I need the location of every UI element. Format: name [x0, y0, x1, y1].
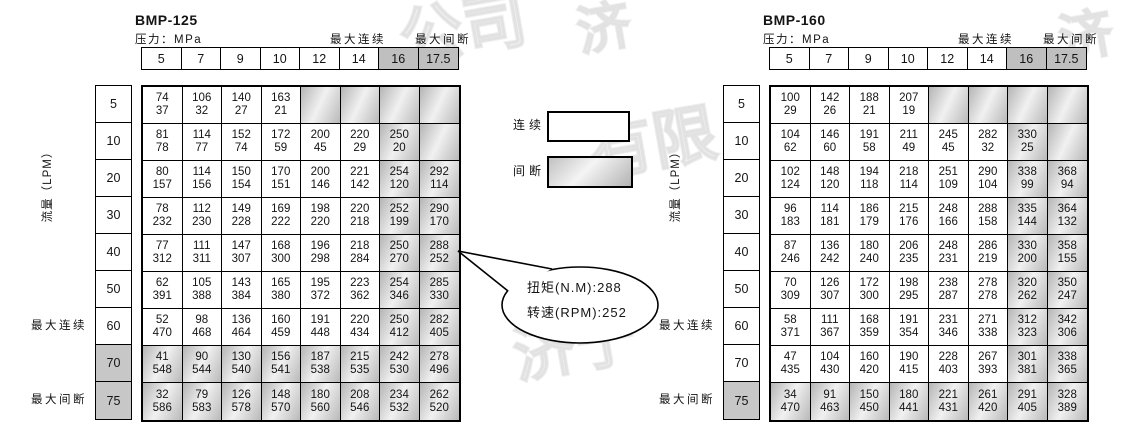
- speed-value: 200: [1018, 253, 1037, 266]
- speed-value: 27: [235, 105, 248, 118]
- data-cell: 350247: [1048, 272, 1088, 309]
- torque-value: 172: [860, 277, 879, 290]
- speed-value: 32: [981, 142, 994, 155]
- torque-value: 198: [899, 277, 918, 290]
- torque-value: 328: [1058, 389, 1077, 402]
- torque-value: 292: [430, 166, 449, 179]
- speed-value: 520: [430, 402, 449, 415]
- torque-value: 147: [232, 240, 251, 253]
- data-cell: 252199: [380, 198, 420, 235]
- data-cell: 218284: [341, 235, 381, 272]
- flow-label-cell: 20: [724, 160, 759, 197]
- torque-value: 160: [860, 351, 879, 364]
- speed-value: 19: [902, 105, 915, 118]
- torque-value: 198: [311, 203, 330, 216]
- speed-value: 430: [820, 364, 839, 377]
- flow-label-cell: 60: [724, 308, 759, 345]
- data-cell: 25020: [380, 124, 420, 161]
- data-cell: 234532: [380, 383, 420, 420]
- speed-value: 155: [1058, 253, 1077, 266]
- speed-value: 420: [978, 402, 997, 415]
- data-cell: 196298: [301, 235, 341, 272]
- torque-value: 80: [156, 166, 169, 179]
- data-cell: 33899: [1008, 161, 1048, 198]
- speed-value: 435: [781, 364, 800, 377]
- speed-value: 548: [153, 364, 172, 377]
- torque-value: 140: [232, 92, 251, 105]
- torque-value: 142: [820, 92, 839, 105]
- flow-label-cell: 40: [724, 234, 759, 271]
- speed-value: 586: [153, 402, 172, 415]
- torque-value: 250: [390, 240, 409, 253]
- flow-label-column: 51020304050607075: [723, 85, 760, 420]
- speed-value: 384: [232, 290, 251, 303]
- data-cell: 150154: [222, 161, 262, 198]
- torque-value: 215: [350, 351, 369, 364]
- callout-torque-text: 扭矩(N.M):288: [527, 277, 622, 296]
- torque-value: 191: [899, 314, 918, 327]
- continuous-legend-swatch: [547, 111, 630, 142]
- speed-value: 311: [193, 253, 211, 266]
- data-cell: 19158: [850, 124, 890, 161]
- speed-value: 323: [1018, 327, 1037, 340]
- speed-value: 470: [781, 402, 800, 415]
- torque-value: 220: [350, 129, 369, 142]
- speed-value: 74: [235, 142, 248, 155]
- flow-axis-label: 流量（LPM）: [39, 134, 55, 234]
- torque-value: 150: [860, 389, 879, 402]
- pressure-unit-label: 压力：MPa: [763, 31, 830, 47]
- data-cell: 248166: [929, 198, 969, 235]
- torque-value: 136: [820, 240, 839, 253]
- data-cell: 148120: [811, 161, 851, 198]
- torque-value: 143: [232, 277, 251, 290]
- speed-value: 232: [153, 216, 172, 229]
- torque-value: 180: [311, 389, 330, 402]
- data-cell: 330200: [1008, 235, 1048, 272]
- data-cell: 114156: [183, 161, 223, 198]
- speed-value: 114: [900, 179, 918, 192]
- data-cell: 278496: [420, 346, 460, 383]
- speed-value: 530: [390, 364, 409, 377]
- data-cell: 250412: [380, 309, 420, 346]
- data-cell: 41548: [143, 346, 183, 383]
- speed-value: 532: [390, 402, 409, 415]
- data-cell: 14226: [811, 87, 851, 124]
- speed-value: 403: [939, 364, 958, 377]
- speed-value: 32: [195, 105, 208, 118]
- flow-label-cell: 70: [96, 345, 131, 382]
- speed-value: 298: [311, 253, 330, 266]
- data-cell: 186179: [850, 198, 890, 235]
- speed-value: 29: [353, 142, 366, 155]
- speed-value: 415: [899, 364, 918, 377]
- torque-value: 282: [978, 129, 997, 142]
- speed-value: 114: [430, 179, 448, 192]
- torque-value: 242: [390, 351, 409, 364]
- data-cell: [301, 87, 341, 124]
- data-cell: 221431: [929, 383, 969, 420]
- torque-value: 338: [1018, 166, 1037, 179]
- data-cell: 187538: [301, 346, 341, 383]
- speed-value: 278: [978, 290, 997, 303]
- torque-value: 102: [781, 166, 800, 179]
- speed-value: 287: [939, 290, 958, 303]
- data-cell: 180560: [301, 383, 341, 420]
- torque-value: 81: [156, 129, 169, 142]
- speed-value: 544: [192, 364, 211, 377]
- torque-value: 200: [311, 166, 330, 179]
- torque-value: 148: [820, 166, 839, 179]
- data-cell: [380, 87, 420, 124]
- data-cell: 267393: [969, 346, 1009, 383]
- torque-value: 98: [195, 314, 208, 327]
- torque-value: 170: [271, 166, 290, 179]
- data-cell: [420, 124, 460, 161]
- flow-label-cell: 75: [724, 382, 759, 419]
- data-cell: 14660: [811, 124, 851, 161]
- torque-value: 262: [430, 389, 449, 402]
- speed-value: 230: [192, 216, 211, 229]
- speed-value: 146: [311, 179, 330, 192]
- data-cell: 290104: [969, 161, 1009, 198]
- flow-label-cell: 10: [96, 123, 131, 160]
- watermark-text: 济: [570, 0, 637, 67]
- continuous-legend-label: 连续: [513, 116, 545, 133]
- speed-value: 468: [192, 327, 211, 340]
- speed-value: 346: [939, 327, 958, 340]
- speed-value: 441: [899, 402, 918, 415]
- torque-value: 104: [781, 129, 800, 142]
- speed-value: 247: [1058, 290, 1077, 303]
- speed-value: 219: [978, 253, 997, 266]
- data-cell: 111367: [811, 309, 851, 346]
- data-cell: 136464: [222, 309, 262, 346]
- torque-value: 77: [156, 240, 169, 253]
- torque-value: 112: [193, 203, 211, 216]
- pressure-header-cell: 5: [770, 48, 810, 69]
- pressure-header-cell: 9: [849, 48, 889, 69]
- speed-value: 450: [860, 402, 879, 415]
- data-cell: 251109: [929, 161, 969, 198]
- data-cell: 114181: [811, 198, 851, 235]
- torque-value: 96: [784, 203, 797, 216]
- speed-value: 389: [1058, 402, 1077, 415]
- speed-value: 405: [1018, 402, 1037, 415]
- data-cell: 290170: [420, 198, 460, 235]
- data-cell: 143384: [222, 272, 262, 309]
- data-cell: 105388: [183, 272, 223, 309]
- max-intermittent-header-label: 最大间断: [415, 31, 471, 47]
- torque-value: 87: [784, 240, 797, 253]
- torque-value: 187: [311, 351, 330, 364]
- speed-value: 367: [820, 327, 839, 340]
- data-cell: [969, 87, 1009, 124]
- speed-value: 388: [192, 290, 211, 303]
- data-cell: 338365: [1048, 346, 1088, 383]
- torque-value: 78: [156, 203, 169, 216]
- max-intermittent-side-label: 最大间断: [11, 391, 87, 407]
- speed-value: 300: [271, 253, 290, 266]
- speed-value: 220: [311, 216, 330, 229]
- data-cell: 79583: [183, 383, 223, 420]
- speed-value: 120: [390, 179, 409, 192]
- data-cell: 36894: [1048, 161, 1088, 198]
- data-cell: 206235: [890, 235, 930, 272]
- speed-value: 448: [311, 327, 330, 340]
- data-cell: 156541: [262, 346, 302, 383]
- torque-value: 156: [271, 351, 290, 364]
- torque-value: 114: [193, 166, 211, 179]
- torque-value: 221: [939, 389, 958, 402]
- data-cell: 78232: [143, 198, 183, 235]
- speed-value: 431: [939, 402, 958, 415]
- speed-value: 218: [350, 216, 369, 229]
- torque-value: 41: [156, 351, 169, 364]
- speed-value: 231: [939, 253, 958, 266]
- torque-value: 254: [390, 277, 409, 290]
- torque-value: 74: [156, 92, 169, 105]
- speed-value: 371: [781, 327, 800, 340]
- data-cell: 111311: [183, 235, 223, 272]
- pressure-header-cell: 9: [221, 48, 261, 69]
- speed-value: 118: [860, 179, 878, 192]
- data-cell: 165380: [262, 272, 302, 309]
- torque-value: 267: [978, 351, 997, 364]
- torque-value: 238: [939, 277, 958, 290]
- data-cell: 200146: [301, 161, 341, 198]
- speed-value: 309: [781, 290, 800, 303]
- data-cell: 215535: [341, 346, 381, 383]
- data-cell: 218114: [890, 161, 930, 198]
- pressure-header-cell: 16: [379, 48, 419, 69]
- data-cell: 15274: [222, 124, 262, 161]
- data-cell: 20045: [301, 124, 341, 161]
- pressure-header-row: 5791012141617.5: [769, 47, 1087, 70]
- pressure-header-cell: 17.5: [1047, 48, 1087, 69]
- data-cell: 261420: [969, 383, 1009, 420]
- speed-value: 37: [156, 105, 169, 118]
- speed-value: 262: [1018, 290, 1037, 303]
- speed-value: 156: [192, 179, 211, 192]
- torque-value: 206: [899, 240, 918, 253]
- torque-value: 330: [1018, 240, 1037, 253]
- data-cell: 33025: [1008, 124, 1048, 161]
- data-cell: 98468: [183, 309, 223, 346]
- data-cell: 70309: [771, 272, 811, 309]
- torque-value: 149: [232, 203, 251, 216]
- speed-value: 307: [232, 253, 251, 266]
- speed-value: 179: [860, 216, 879, 229]
- torque-value: 152: [232, 129, 251, 142]
- data-cell: 198220: [301, 198, 341, 235]
- data-cell: 221142: [341, 161, 381, 198]
- speed-value: 26: [823, 105, 836, 118]
- bmp-160-table: BMP-160 压力：MPa 最大连续 最大间断 5791012141617.5…: [723, 0, 1093, 433]
- flow-label-column: 51020304050607075: [95, 85, 132, 420]
- data-cell: 96183: [771, 198, 811, 235]
- torque-value: 301: [1018, 351, 1037, 364]
- data-cell: 278278: [969, 272, 1009, 309]
- flow-label-cell: 60: [96, 308, 131, 345]
- speed-value: 240: [860, 253, 879, 266]
- speed-value: 391: [153, 290, 172, 303]
- speed-value: 381: [1018, 364, 1037, 377]
- data-cell: 228403: [929, 346, 969, 383]
- data-cell: 21149: [890, 124, 930, 161]
- torque-value: 290: [430, 203, 449, 216]
- torque-value: 32: [156, 389, 169, 402]
- torque-value: 218: [899, 166, 918, 179]
- data-cell: 180441: [890, 383, 930, 420]
- data-cell: 62391: [143, 272, 183, 309]
- speed-value: 246: [781, 253, 800, 266]
- pressure-header-cell: 7: [810, 48, 850, 69]
- speed-value: 464: [232, 327, 251, 340]
- pressure-header-cell: 12: [300, 48, 340, 69]
- data-cell: 195372: [301, 272, 341, 309]
- torque-value: 338: [1058, 351, 1077, 364]
- pressure-header-cell: 14: [340, 48, 380, 69]
- torque-value: 330: [1018, 129, 1037, 142]
- data-cell: 20719: [890, 87, 930, 124]
- torque-value: 196: [311, 240, 330, 253]
- pressure-header-cell: 7: [182, 48, 222, 69]
- torque-value: 180: [860, 240, 879, 253]
- torque-value: 221: [350, 166, 369, 179]
- pressure-header-cell: 16: [1007, 48, 1047, 69]
- torque-value: 165: [271, 277, 290, 290]
- speed-value: 359: [860, 327, 879, 340]
- data-cell: 58371: [771, 309, 811, 346]
- data-cell: 10462: [771, 124, 811, 161]
- torque-value: 188: [860, 92, 879, 105]
- speed-value: 412: [390, 327, 409, 340]
- speed-value: 78: [156, 142, 169, 155]
- data-cell: 112230: [183, 198, 223, 235]
- speed-value: 77: [195, 142, 208, 155]
- torque-value: 148: [271, 389, 290, 402]
- torque-value: 160: [271, 314, 290, 327]
- speed-value: 541: [271, 364, 290, 377]
- speed-value: 338: [978, 327, 997, 340]
- data-cell: 10029: [771, 87, 811, 124]
- speed-value: 49: [902, 142, 915, 155]
- pressure-header-cell: 10: [261, 48, 301, 69]
- torque-value: 146: [820, 129, 839, 142]
- torque-value: 250: [390, 129, 409, 142]
- flow-label-cell: 30: [724, 197, 759, 234]
- speed-value: 470: [153, 327, 172, 340]
- torque-value: 200: [311, 129, 330, 142]
- torque-value: 186: [860, 203, 879, 216]
- speed-value: 578: [232, 402, 251, 415]
- torque-value: 130: [232, 351, 251, 364]
- speed-value: 154: [232, 179, 251, 192]
- data-cell: 248231: [929, 235, 969, 272]
- data-cell: 28232: [969, 124, 1009, 161]
- data-cell: 136242: [811, 235, 851, 272]
- speed-value: 29: [784, 105, 797, 118]
- speed-value: 570: [271, 402, 290, 415]
- torque-value: 58: [784, 314, 797, 327]
- data-cell: 147307: [222, 235, 262, 272]
- data-cell: 335144: [1008, 198, 1048, 235]
- torque-value: 252: [390, 203, 409, 216]
- data-cell: [1008, 87, 1048, 124]
- speed-value: 176: [899, 216, 918, 229]
- data-cell: 149228: [222, 198, 262, 235]
- speed-value: 25: [1021, 142, 1034, 155]
- data-cell: 90544: [183, 346, 223, 383]
- speed-value: 496: [430, 364, 449, 377]
- data-cell: 194118: [850, 161, 890, 198]
- speed-value: 354: [899, 327, 918, 340]
- speed-value: 270: [390, 253, 409, 266]
- table-title: BMP-160: [763, 12, 826, 28]
- speed-value: 242: [820, 253, 839, 266]
- data-cell: 180240: [850, 235, 890, 272]
- data-cell: 220434: [341, 309, 381, 346]
- data-cell: 208546: [341, 383, 381, 420]
- data-cell: [929, 87, 969, 124]
- torque-value: 163: [271, 92, 290, 105]
- data-cell: 254346: [380, 272, 420, 309]
- torque-value: 70: [784, 277, 797, 290]
- speed-value: 181: [820, 216, 839, 229]
- data-cell: 301381: [1008, 346, 1048, 383]
- intermittent-legend-label: 间断: [513, 162, 545, 179]
- speed-value: 58: [863, 142, 876, 155]
- torque-value: 191: [860, 129, 879, 142]
- speed-value: 295: [899, 290, 918, 303]
- torque-value: 79: [195, 389, 208, 402]
- data-cell: 312323: [1008, 309, 1048, 346]
- data-cell: 168300: [262, 235, 302, 272]
- speed-value: 306: [1058, 327, 1077, 340]
- speed-value: 99: [1021, 179, 1034, 192]
- torque-value: 254: [390, 166, 409, 179]
- data-cell: 14027: [222, 87, 262, 124]
- pressure-header-row: 5791012141617.5: [141, 47, 459, 70]
- speed-value: 346: [390, 290, 409, 303]
- torque-value: 291: [1018, 389, 1037, 402]
- speed-value: 20: [393, 142, 406, 155]
- speed-value: 420: [860, 364, 879, 377]
- speed-value: 307: [820, 290, 839, 303]
- data-cell: 172300: [850, 272, 890, 309]
- speed-value: 434: [350, 327, 369, 340]
- data-cell: 169222: [262, 198, 302, 235]
- speed-value: 142: [350, 179, 369, 192]
- torque-value: 169: [271, 203, 290, 216]
- data-cell: 24545: [929, 124, 969, 161]
- data-cell: 191448: [301, 309, 341, 346]
- speed-value: 109: [939, 179, 958, 192]
- data-cell: 17259: [262, 124, 302, 161]
- torque-value: 286: [978, 240, 997, 253]
- torque-value: 278: [978, 277, 997, 290]
- speed-value: 372: [311, 290, 330, 303]
- data-cell: 271338: [969, 309, 1009, 346]
- data-cell: 104430: [811, 346, 851, 383]
- torque-value: 150: [232, 166, 251, 179]
- speed-value: 535: [350, 364, 369, 377]
- performance-grid: 1002914226188212071910462146601915821149…: [769, 85, 1089, 422]
- torque-value: 34: [784, 389, 797, 402]
- torque-value: 194: [860, 166, 879, 179]
- speed-value: 228: [232, 216, 251, 229]
